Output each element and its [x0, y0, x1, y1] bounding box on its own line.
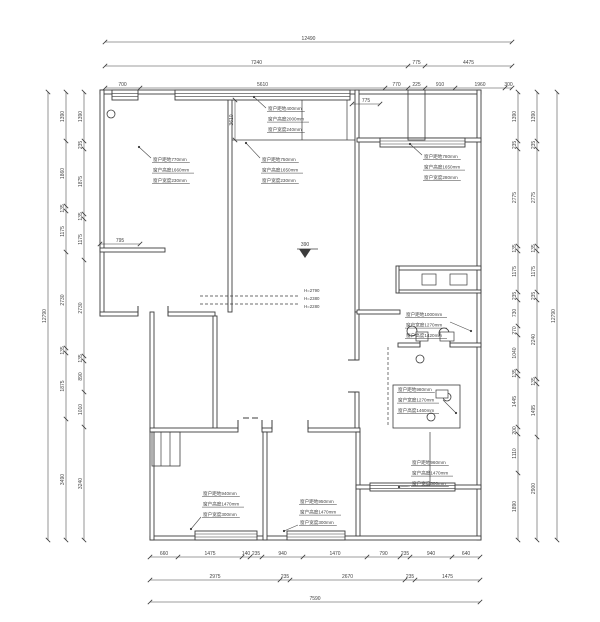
window-annotation-text: 窗户高度1460mm	[398, 407, 434, 414]
dim-label: 300	[504, 82, 513, 88]
window-annotation-text: 窗户高度1470mm	[203, 501, 239, 508]
dim-label: 135	[60, 204, 66, 213]
wall-segment	[262, 428, 272, 432]
dim-label: 225	[412, 82, 421, 88]
dim-label: 4475	[463, 60, 474, 66]
dim-label: 200	[512, 426, 518, 435]
dim-label: 2975	[209, 574, 220, 580]
dim-label: 235	[531, 141, 537, 150]
window-annotation-text: 窗户宽度280mm	[424, 174, 458, 181]
wall-segment	[398, 266, 481, 270]
dim-label: 1390	[512, 111, 518, 122]
elevation-layer: 390	[297, 242, 318, 258]
window-annotation-text: 窗户宽度230mm	[153, 177, 187, 184]
dim-label: 1475	[442, 574, 453, 580]
annotation-leader	[191, 517, 201, 529]
dim-label: 135	[78, 212, 84, 221]
dim-label: 940	[278, 551, 287, 557]
dim-label: 770	[392, 82, 401, 88]
annotation-leader-arrow	[409, 143, 411, 145]
annotation-leader	[284, 525, 298, 531]
elevation-marker	[299, 249, 311, 258]
window-annotation-text: 窗户高度1420mm	[406, 332, 442, 339]
dim-label: 235	[252, 551, 261, 557]
dim-label: 1875	[60, 380, 66, 391]
window-annotation-text: 窗户距地750mm	[262, 156, 296, 163]
dim-label: 140	[242, 551, 251, 557]
dim-label: 1040	[512, 347, 518, 358]
fixture-circle	[416, 355, 424, 363]
wall-segment	[100, 248, 165, 252]
details-layer	[107, 90, 467, 485]
dim-label: 1175	[531, 266, 537, 277]
wall-segment	[213, 316, 217, 430]
dim-label: 135	[512, 244, 518, 253]
dim-label: 270	[512, 326, 518, 335]
dim-label: 1890	[512, 501, 518, 512]
window-annotation-text: 窗户宽度230mm	[262, 177, 296, 184]
window-annotation-text: 窗户距地940mm	[203, 490, 237, 497]
dim-label: 1495	[531, 405, 537, 416]
window-annotation-text: 窗户宽度300mm	[203, 511, 237, 518]
window-annotation-text: 窗户高度1470mm	[412, 470, 448, 477]
wall-segment	[100, 90, 104, 316]
wall-segment	[355, 90, 359, 312]
window-annotation-text: 窗户宽度300mm	[412, 480, 446, 487]
dim-label: 910	[436, 82, 445, 88]
window-annotation-text: 窗户高度1650mm	[424, 164, 460, 171]
window-band	[175, 90, 350, 100]
dim-label: 1445	[512, 396, 518, 407]
window-annotation-text: 窗户宽度300mm	[300, 519, 334, 526]
dim-label: 235	[406, 574, 415, 580]
dim-label: 135	[531, 244, 537, 253]
window-band	[195, 531, 257, 540]
level-label: H=2280	[304, 304, 320, 309]
wall-segment	[356, 432, 360, 536]
wall-segment	[308, 428, 360, 432]
dim-label: 1175	[512, 266, 518, 277]
fixture-rect	[450, 274, 467, 285]
room-outline	[408, 90, 425, 140]
level-label: H=2380	[304, 296, 320, 301]
wall-segment	[100, 312, 138, 316]
dim-label: 3240	[78, 478, 84, 489]
annotation-leader-arrow	[398, 486, 400, 488]
dim-label: 1175	[78, 234, 84, 245]
wall-segment	[398, 343, 420, 347]
annotation-leader	[246, 143, 260, 158]
dim-label: 135	[512, 369, 518, 378]
wall-segment	[356, 485, 370, 489]
dim-label: 135	[60, 346, 66, 355]
floor-plan-svg: 1249072407754475700561077022591019603006…	[0, 0, 600, 622]
dim-label: 3490	[60, 474, 66, 485]
dim-label: 235	[78, 141, 84, 150]
wall-segment	[355, 312, 359, 360]
dim-label: 5610	[257, 82, 268, 88]
level-label: H=2790	[304, 288, 320, 293]
dim-label: 775	[412, 60, 421, 66]
fixture-circle	[427, 413, 435, 421]
annotation-leader	[450, 322, 471, 331]
dim-label: 135	[78, 354, 84, 363]
dim-label: 2900	[531, 483, 537, 494]
wall-segment	[150, 428, 238, 432]
dim-label: 2730	[78, 302, 84, 313]
wall-segment	[450, 343, 481, 347]
window-band	[380, 138, 465, 147]
wall-segment	[455, 485, 481, 489]
dim-label: 235	[401, 551, 410, 557]
dim-label: 1470	[329, 551, 340, 557]
annotation-leader-arrow	[253, 96, 255, 98]
fixture-rect	[422, 274, 436, 285]
annotation-leader-arrow	[138, 146, 140, 148]
dim-label: 1390	[78, 111, 84, 122]
window-annotation-text: 窗户高度1650mm	[262, 167, 298, 174]
dim-label: 1110	[512, 448, 518, 459]
wall-segment	[477, 90, 481, 540]
dim-label: 890	[78, 372, 84, 381]
dim-label: 1860	[60, 168, 66, 179]
dim-label: 1175	[60, 226, 66, 237]
dim-label: 2775	[512, 192, 518, 203]
window-annotation-text: 窗户宽度1270mm	[398, 397, 434, 404]
dim-label: 12790	[42, 309, 48, 323]
dim-label: 795	[116, 238, 125, 244]
window-annotation-text: 窗户距地1000mm	[406, 311, 442, 318]
window-annotation-text: 窗户高度2000mm	[268, 116, 304, 123]
wall-segment	[228, 98, 232, 312]
dim-label: 1390	[531, 111, 537, 122]
window-band	[112, 90, 138, 100]
window-annotation-text: 窗户高度1470mm	[300, 509, 336, 516]
fixture-circle	[107, 110, 115, 118]
wall-segment	[396, 266, 399, 293]
window-annotation-text: 窗户宽度1270mm	[406, 322, 442, 329]
window-annotation-text: 窗户距地780mm	[424, 153, 458, 160]
dim-label: 1960	[474, 82, 485, 88]
dim-label: 235	[531, 292, 537, 301]
wall-segment	[398, 290, 481, 293]
dim-label: 1390	[60, 111, 66, 122]
annotation-leader-arrow	[245, 142, 247, 144]
wall-segment	[357, 310, 400, 314]
window-annotation-text: 窗户距地980mm	[398, 386, 432, 393]
dim-label: 2775	[531, 192, 537, 203]
dim-label: 700	[118, 82, 127, 88]
dim-label: 1875	[78, 176, 84, 187]
dim-label: 12490	[302, 36, 316, 42]
annotation-leader-arrow	[283, 530, 285, 532]
dim-label: 1475	[204, 551, 215, 557]
dim-label: 640	[462, 551, 471, 557]
floor-plan-document: 1249072407754475700561077022591019603006…	[0, 0, 600, 622]
fixture-rect	[436, 390, 448, 398]
annotation-leader-arrow	[455, 412, 457, 414]
wall-segment	[355, 392, 359, 430]
room-outline	[152, 432, 180, 466]
annotation-leader	[139, 147, 151, 158]
annotation-leader-arrow	[190, 528, 192, 530]
wall-segment	[263, 432, 267, 540]
window-annotation-text: 窗户距地960mm	[412, 459, 446, 466]
window-annotation-text: 窗户距地950mm	[300, 498, 334, 505]
dim-label: 235	[281, 574, 290, 580]
dim-label: 7590	[309, 596, 320, 602]
dim-label: 775	[362, 98, 371, 104]
window-annotation-text: 窗户距地770mm	[153, 156, 187, 163]
annotation-leader	[443, 400, 456, 413]
wall-segment	[168, 312, 215, 316]
dim-label: 3610	[229, 114, 235, 125]
elevation-label: 390	[301, 242, 310, 248]
annotation-leader-arrow	[470, 330, 472, 332]
dim-label: 135	[531, 377, 537, 386]
dim-label: 12790	[551, 309, 557, 323]
dim-label: 7240	[251, 60, 262, 66]
dim-label: 660	[160, 551, 169, 557]
dim-label: 235	[512, 141, 518, 150]
window-annotation-text: 窗户高度1660mm	[153, 167, 189, 174]
dim-label: 2670	[342, 574, 353, 580]
window-annotation-text: 窗户距地400mm	[268, 105, 302, 112]
dim-label: 2240	[531, 334, 537, 345]
dim-label: 2730	[60, 294, 66, 305]
window-band	[287, 531, 345, 540]
dim-label: 940	[427, 551, 436, 557]
dim-label: 1010	[78, 404, 84, 415]
dim-label: 235	[512, 292, 518, 301]
dim-label: 790	[379, 551, 388, 557]
dim-label: 730	[512, 309, 518, 318]
wall-segment	[150, 312, 154, 540]
window-annotation-text: 窗户宽度240mm	[268, 126, 302, 133]
